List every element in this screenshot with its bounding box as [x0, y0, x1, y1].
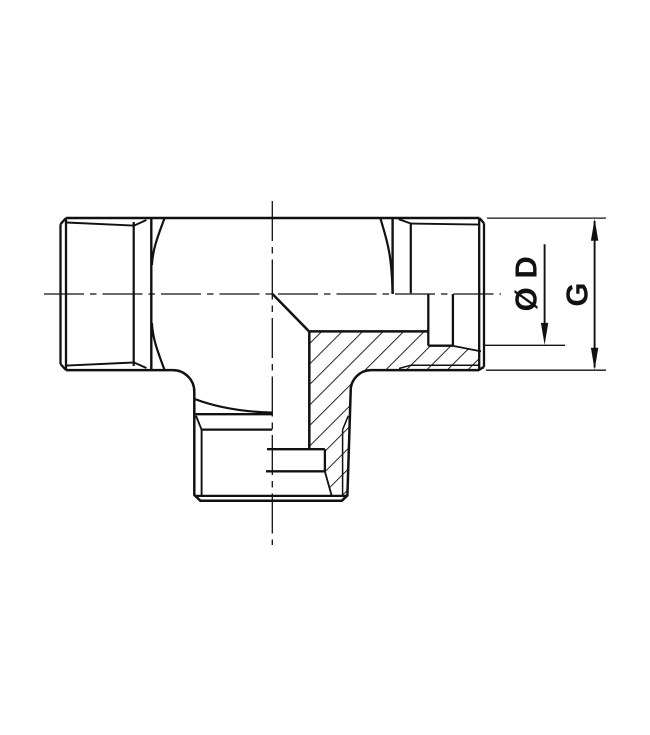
svg-text:G: G — [560, 282, 595, 306]
svg-text:Ø D: Ø D — [509, 256, 544, 311]
